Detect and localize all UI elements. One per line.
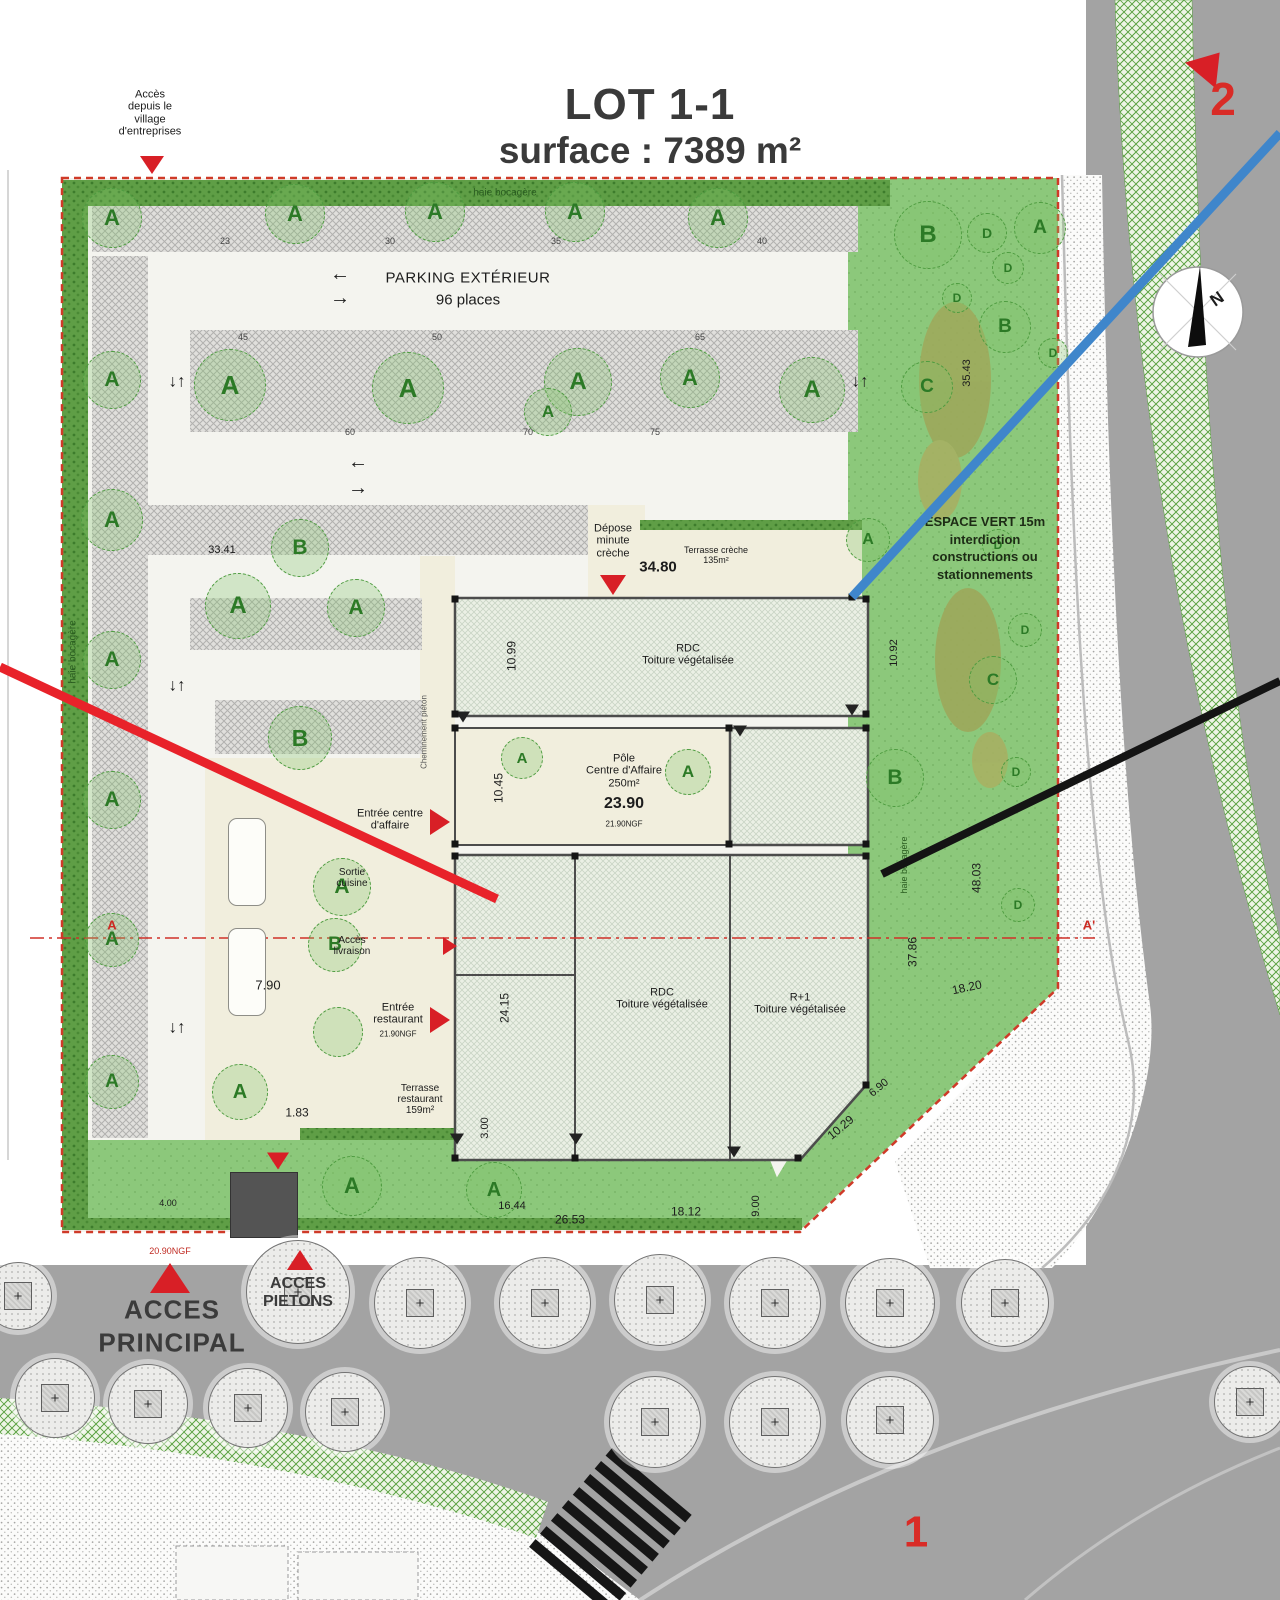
dim: 7.90 [255, 979, 280, 994]
tree: A [83, 771, 141, 829]
tree [313, 1007, 363, 1057]
hedge-label-left: haie bocagère [67, 620, 78, 683]
street-tree: + [208, 1368, 288, 1448]
acces-principal-arrow [150, 1263, 190, 1293]
direction-marker [733, 726, 747, 737]
street-tree: + [609, 1376, 701, 1468]
dim: 18.12 [671, 1205, 701, 1218]
sortie-cuisine-label: Sortie cuisine [336, 867, 367, 889]
wall-node [452, 841, 459, 848]
street-tree: + [499, 1257, 591, 1349]
site-plan-canvas: LOT 1-1 surface : 7389 m² haie bocagèreh… [0, 0, 1280, 1600]
stall-count: 45 [238, 332, 248, 342]
wall-node [452, 725, 459, 732]
dim: 26.53 [555, 1213, 585, 1226]
hedge-label-right: haie bocagère [899, 836, 909, 893]
tree: B [866, 749, 924, 807]
tree: A [82, 188, 142, 248]
flow-arrow: ↓↑ [169, 371, 186, 390]
entree-restaurant-label: Entrée restaurant [373, 1002, 423, 1027]
dim: 37.86 [906, 937, 919, 967]
acces-livraison-label: Accès livraison [334, 935, 371, 957]
tree: A [327, 579, 385, 637]
tree: A [194, 349, 266, 421]
ngf-restaurant: 21.90NGF [380, 1031, 417, 1040]
wall-node [849, 594, 856, 601]
wall-node [726, 725, 733, 732]
stall-count: 60 [345, 427, 355, 437]
stall-count: 75 [650, 427, 660, 437]
r1-main-label: R+1 Toiture végétalisée [754, 992, 846, 1017]
dim: 9.00 [750, 1195, 762, 1216]
flow-arrow: ↓↑ [169, 1017, 186, 1036]
tree: A [205, 573, 271, 639]
acces-pietons-arrow [287, 1250, 313, 1270]
ngf-acces: 20.90NGF [149, 1246, 191, 1256]
wall-node [726, 841, 733, 848]
plan-title: LOT 1-1 [390, 80, 910, 130]
tree: A [322, 1156, 382, 1216]
tree: A [83, 631, 141, 689]
tree: C [969, 656, 1017, 704]
wall-node [452, 711, 459, 718]
wall-node [863, 725, 870, 732]
flow-arrow: ← [348, 451, 368, 473]
direction-marker [569, 1134, 583, 1145]
dim-23-90: 23.90 [604, 795, 644, 813]
flow-arrow: → [330, 287, 350, 309]
livraison-arrow [443, 937, 457, 955]
south-access-arrow [267, 1153, 289, 1170]
compass-rose [1153, 266, 1243, 357]
street-tree: + [1214, 1366, 1280, 1438]
tree: A [501, 737, 543, 779]
street-tree: + [846, 1376, 934, 1464]
stall-count: 65 [695, 332, 705, 342]
wall-node [572, 853, 579, 860]
tree: D [942, 283, 972, 313]
street-tree: + [845, 1258, 935, 1348]
depose-minute-label: Dépose minute crèche [594, 523, 632, 560]
tree: A [212, 1064, 268, 1120]
planter [228, 928, 266, 1016]
terrasse-creche-label: Terrasse crèche 135m² [684, 545, 748, 565]
cheminement-label: Cheminement piéton [421, 695, 430, 769]
parking-title: PARKING EXTÉRIEUR [386, 271, 551, 288]
planter [228, 818, 266, 906]
section-a: A [107, 919, 116, 934]
flow-arrow: ← [330, 263, 350, 285]
dim: 10.99 [505, 641, 518, 671]
dim: 1.83 [285, 1106, 308, 1119]
plan-surface: surface : 7389 m² [360, 130, 940, 172]
section-a-prime: A' [1083, 919, 1095, 934]
access-village-arrow [140, 156, 164, 174]
hedge-label-top: haie bocagère [473, 187, 536, 198]
dim: 33.41 [208, 544, 236, 556]
wall-node [572, 1155, 579, 1162]
street-tree: + [729, 1257, 821, 1349]
dim: 10.92 [888, 639, 900, 667]
stall-count: 50 [432, 332, 442, 342]
street-tree: + [961, 1259, 1049, 1347]
tree: B [271, 519, 329, 577]
terrasse-restaurant-label: Terrasse restaurant 159m² [397, 1083, 442, 1117]
tree: A [81, 489, 143, 551]
flow-arrow: ↓↑ [169, 675, 186, 694]
tree: B [268, 706, 332, 770]
street-tree: + [374, 1257, 466, 1349]
tree: A [688, 188, 748, 248]
tree: D [967, 213, 1007, 253]
tree: A [372, 352, 444, 424]
tree: A [83, 351, 141, 409]
tree: A [85, 1055, 139, 1109]
wall-node [863, 841, 870, 848]
stall-count: 30 [385, 236, 395, 246]
flow-arrow: → [348, 477, 368, 499]
tree: A [660, 348, 720, 408]
tree: A [846, 518, 890, 562]
wall-node [863, 596, 870, 603]
dim: 24.15 [498, 993, 511, 1023]
dim: 35.43 [961, 359, 973, 387]
tree: C [901, 361, 953, 413]
espace-vert-note: ESPACE VERT 15m interdiction constructio… [925, 513, 1045, 583]
tree: B [979, 301, 1031, 353]
dim: 10.45 [492, 773, 505, 803]
tree: D [1001, 757, 1031, 787]
street-tree: + [614, 1254, 706, 1346]
zone-marker-1: 1 [904, 1507, 928, 1556]
street-tree: + [729, 1376, 821, 1468]
street-tree: + [108, 1364, 188, 1444]
tree: A [1014, 202, 1066, 254]
wall-node [452, 853, 459, 860]
tree: A [405, 182, 465, 242]
depose-arrow [600, 575, 626, 595]
dim: 4.00 [159, 1198, 177, 1208]
rdc-main-label: RDC Toiture végétalisée [616, 987, 708, 1012]
wall-node [452, 1155, 459, 1162]
tree: A [545, 182, 605, 242]
tree: D [1038, 338, 1068, 368]
dim: 48.03 [970, 863, 983, 893]
dim-34-80: 34.80 [639, 560, 677, 577]
dim: 3.00 [479, 1117, 491, 1138]
acces-principal-label: ACCES PRINCIPAL [98, 1294, 245, 1359]
wall-node [863, 711, 870, 718]
entree-centre-label: Entrée centre d'affaire [357, 808, 423, 833]
wall-node [863, 853, 870, 860]
stall-count: 40 [757, 236, 767, 246]
wall-node [452, 596, 459, 603]
street-tree: + [305, 1372, 385, 1452]
rdc-creche-label: RDC Toiture végétalisée [642, 643, 734, 668]
flow-arrow: ↓↑ [852, 371, 869, 390]
acces-pietons-label: ACCES PIETONS [263, 1275, 333, 1311]
dim: 16.44 [498, 1200, 526, 1212]
tree: A [779, 357, 845, 423]
tree: B [894, 201, 962, 269]
utility-block [230, 1172, 298, 1238]
tree: D [1001, 888, 1035, 922]
entree-restaurant-arrow [430, 1007, 450, 1033]
entree-centre-arrow [430, 809, 450, 835]
parking-places: 96 places [436, 293, 500, 310]
direction-marker [450, 1134, 464, 1145]
direction-marker [727, 1147, 741, 1158]
stall-count: 70 [523, 427, 533, 437]
ngf-centre: 21.90NGF [606, 821, 643, 830]
stall-count: 35 [551, 236, 561, 246]
tree: A [665, 749, 711, 795]
buildings [455, 598, 868, 1160]
direction-marker [845, 705, 859, 716]
tree: D [1008, 613, 1042, 647]
pole-centre-affaire-label: Pôle Centre d'Affaire 250m² [586, 753, 662, 790]
zone-marker-2: 2 [1210, 74, 1236, 126]
tree: D [992, 252, 1024, 284]
wall-node [795, 1155, 802, 1162]
access-village-label: Accès depuis le village d'entreprises [119, 88, 182, 137]
stall-count: 23 [220, 236, 230, 246]
street-tree: + [15, 1358, 95, 1438]
tree: A [265, 184, 325, 244]
